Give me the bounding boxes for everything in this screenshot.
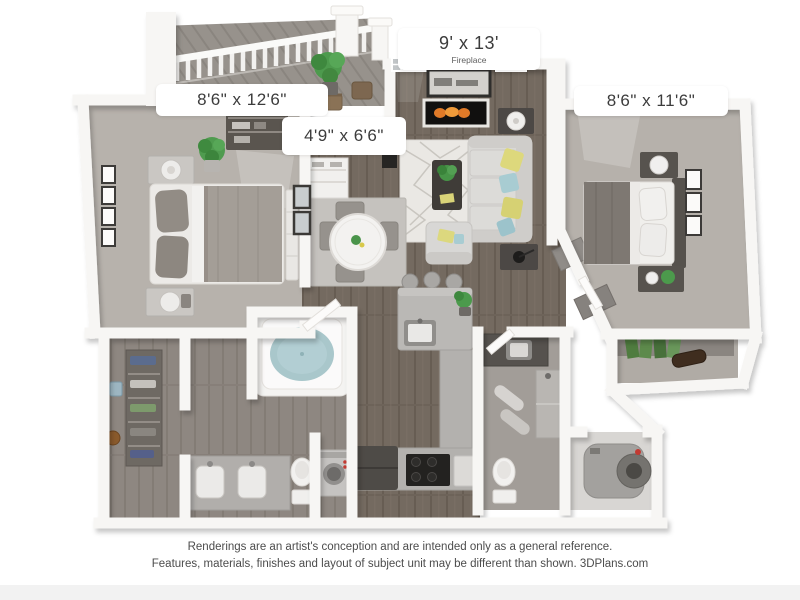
nightstand — [148, 156, 194, 184]
folded-clothes — [130, 428, 156, 436]
window-nook — [294, 212, 310, 234]
living-room-dimensions: 9' x 13' — [439, 33, 499, 54]
faucet — [249, 461, 255, 467]
balcony-chair — [352, 82, 372, 99]
dining-table — [330, 214, 386, 270]
flame — [458, 108, 470, 118]
bedroom-right-dimensions: 8'6" x 11'6" — [607, 91, 696, 111]
folded-clothes — [130, 380, 156, 388]
disclaimer-line-1: Renderings are an artist's conception an… — [0, 539, 800, 556]
peninsula-counter — [440, 350, 472, 454]
centerpiece-plant — [351, 235, 361, 245]
folded-clothes — [130, 450, 154, 458]
armchair — [426, 222, 472, 264]
side-table — [500, 244, 538, 270]
window-nook — [294, 186, 310, 208]
nightstand — [146, 288, 194, 316]
nightstand — [638, 266, 684, 292]
bed — [584, 178, 686, 268]
side-table — [498, 108, 534, 134]
balcony-post-2 — [368, 18, 392, 60]
wall-box — [110, 382, 122, 396]
vase — [646, 272, 658, 284]
floorplan-rendering: 9' x 13' Fireplace 8'6" x 12'6" 4'9" x 6… — [0, 0, 800, 600]
pillow — [155, 235, 189, 279]
water-heater — [584, 444, 651, 498]
indicator-light — [343, 465, 347, 469]
balcony-post — [331, 6, 363, 56]
disclaimer-line-2: Features, materials, finishes and layout… — [0, 556, 800, 573]
disclaimer: Renderings are an artist's conception an… — [0, 539, 800, 573]
utility-closet — [584, 444, 651, 498]
shower-head — [545, 373, 551, 379]
pillow-blue — [454, 234, 464, 244]
label-bedroom-left: 8'6" x 12'6" — [156, 84, 328, 116]
faucet — [207, 461, 213, 467]
fireplace — [424, 100, 488, 126]
sofa — [468, 136, 532, 242]
wall-art — [428, 70, 490, 96]
bottom-strip — [0, 585, 800, 600]
flame — [434, 108, 446, 118]
bar-stool — [424, 272, 440, 288]
bedroom-left-dimensions: 8'6" x 12'6" — [197, 90, 287, 110]
pillow — [639, 187, 668, 221]
flame — [445, 107, 459, 117]
bed — [150, 184, 284, 284]
pillow — [155, 189, 190, 233]
stove — [406, 454, 450, 486]
sink — [238, 466, 266, 498]
valve-light — [635, 449, 641, 455]
dining-nook-dimensions: 4'9" x 6'6" — [304, 126, 384, 146]
pillow-yellow — [500, 196, 523, 219]
double-vanity — [186, 456, 290, 510]
closet-shelf-unit — [126, 350, 162, 466]
sunlight-bedroom-right — [578, 116, 640, 168]
label-dining-nook: 4'9" x 6'6" — [282, 117, 406, 155]
label-living-room: 9' x 13' Fireplace — [398, 28, 540, 70]
pillow-blue — [498, 172, 519, 193]
indicator-light — [343, 460, 347, 464]
toilet — [493, 458, 516, 503]
pillow — [639, 223, 667, 257]
coffee-table — [432, 160, 462, 210]
nightstand — [640, 152, 678, 178]
lamp — [650, 156, 668, 174]
faucet — [418, 319, 423, 324]
sink — [196, 466, 224, 498]
lamp — [160, 292, 180, 312]
folded-clothes — [130, 356, 156, 365]
picture-frames — [686, 170, 701, 235]
fireplace-note: Fireplace — [452, 55, 487, 65]
label-bedroom-right: 8'6" x 11'6" — [574, 86, 728, 116]
china-cabinet — [306, 158, 348, 198]
washer — [318, 450, 350, 496]
folded-clothes — [130, 404, 156, 412]
nightstand-plant — [661, 270, 675, 284]
refrigerator — [354, 446, 398, 490]
